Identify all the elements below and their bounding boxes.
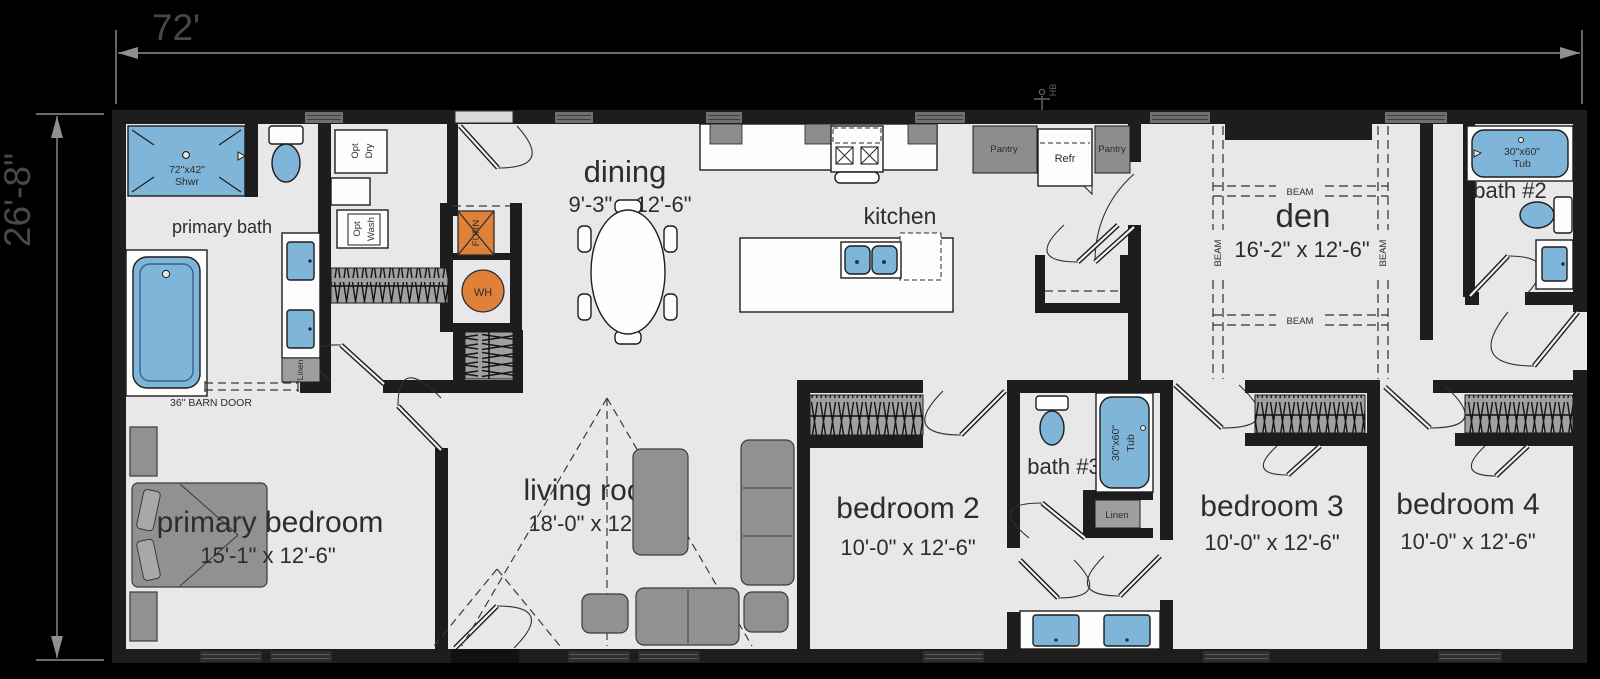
linen-label: Linen [295, 359, 305, 380]
linen-label: Linen [1105, 510, 1128, 521]
linen-primary: Linen [282, 358, 320, 382]
dishwasher [900, 233, 941, 280]
depth-dimension: 26'-8" [0, 114, 104, 660]
sofa-bottom [636, 588, 739, 645]
window [1203, 651, 1270, 662]
dim-arrow-left [118, 47, 138, 59]
kitchen-label: kitchen [864, 203, 937, 229]
wall-utility-right [510, 203, 522, 330]
wall-bed4-closet [1455, 433, 1573, 446]
hose-bib-label: HB [1048, 84, 1058, 97]
upper-cabinet [805, 124, 832, 144]
bedroom3-closet [1255, 395, 1365, 433]
wall-den-right [1420, 124, 1433, 340]
wall-left [112, 110, 126, 663]
bath2-tub-size: 30"x60" [1504, 146, 1540, 158]
wall-living-bed2 [797, 393, 810, 649]
window [706, 112, 742, 123]
upper-cabinet [710, 124, 742, 144]
pantry-label: Pantry [990, 144, 1018, 155]
side-table [744, 592, 788, 632]
shower: 72"x42" Shwr [128, 126, 245, 196]
window [1438, 651, 1502, 662]
dining-chair [578, 226, 591, 252]
primary-vanity [282, 233, 320, 358]
island-sink [872, 246, 897, 274]
window [568, 651, 630, 662]
sofa-right [741, 440, 794, 585]
bedroom4-closet [1465, 395, 1573, 433]
bedroom2-size: 10'-0" x 12'-6" [840, 535, 975, 560]
bedroom4-size: 10'-0" x 12'-6" [1400, 529, 1535, 554]
range-front [835, 172, 879, 183]
wall-hall-bed3-upper [1160, 393, 1173, 540]
water-heater-label: WH [474, 287, 492, 299]
den-size: 16'-2" x 12'-6" [1234, 237, 1369, 262]
opt-dry-word2: Dry [364, 143, 375, 158]
wall-mid-g [1433, 380, 1573, 393]
wall-mid-c [383, 380, 523, 393]
bedroom3-size: 10'-0" x 12'-6" [1204, 530, 1339, 555]
front-door-threshold [451, 649, 519, 663]
wall-primary-living [435, 448, 448, 649]
hose-bib-symbol: HB [1034, 84, 1058, 110]
dining-chair [664, 226, 677, 252]
barn-door-note: 36" BARN DOOR [170, 397, 252, 409]
nightstand [130, 592, 157, 641]
shower-abbr-label: Shwr [175, 176, 199, 188]
wall-wh-bottom [440, 323, 522, 332]
furnace-label: FURN [471, 220, 482, 247]
toilet-primary [269, 126, 303, 182]
dim-arrow-top [51, 116, 63, 138]
window [555, 112, 593, 123]
bath3-tub-abbr: Tub [1125, 434, 1137, 452]
window [1385, 112, 1447, 123]
window [638, 651, 700, 662]
linen-hall: Linen [1095, 500, 1140, 528]
shower-size-label: 72"x42" [169, 164, 205, 176]
water-heater: WH [462, 270, 504, 312]
bath2-tub-abbr: Tub [1513, 158, 1531, 170]
wall-bed2-closet [810, 435, 923, 448]
dining-chair [664, 294, 677, 320]
laundry-closet [331, 268, 448, 303]
bath3-tub: 30"x60" Tub [1096, 393, 1153, 492]
refrigerator: Refr [1038, 129, 1092, 194]
window [305, 112, 343, 123]
wall-mid-d [797, 380, 923, 393]
primary-bedroom-size: 15'-1" x 12'-6" [200, 543, 335, 568]
bedroom4-label: bedroom 4 [1396, 488, 1539, 521]
kitchen-island [740, 233, 953, 312]
pantry-label: Pantry [1098, 144, 1126, 155]
wall-hallcloset-bottom [1035, 303, 1130, 313]
utility-counter [331, 178, 370, 205]
floor-plan-page: 72' 26'-8" HB [0, 0, 1600, 679]
wall-bed2-hall-upper [1007, 393, 1020, 548]
hose-bib-head [1039, 89, 1044, 94]
back-door-threshold [455, 111, 513, 123]
bath2-label: bath #2 [1473, 178, 1546, 203]
wall-bed3-closet [1245, 433, 1368, 446]
width-dimension-label: 72' [152, 7, 200, 48]
refrigerator-label: Refr [1055, 153, 1076, 165]
burner [836, 147, 853, 164]
window [923, 651, 984, 662]
window [200, 651, 262, 662]
dining-chair [578, 294, 591, 320]
shower-drain [183, 152, 190, 159]
pantry-right: Pantry [1095, 126, 1130, 173]
pantry-left: Pantry [973, 126, 1037, 173]
wall-den-top-inset [1225, 124, 1372, 140]
bath2-tub: 30"x60" Tub [1467, 126, 1573, 181]
wall-mid-e [1007, 380, 1173, 393]
wall-right-lower [1573, 370, 1587, 663]
depth-dimension-label: 26'-8" [0, 153, 38, 247]
window [1150, 112, 1210, 123]
primary-tub [126, 250, 207, 396]
wall-bed3-bed4 [1367, 393, 1380, 649]
wall-closet-right [513, 330, 523, 380]
wall-utility-left [440, 203, 453, 330]
primary-bath-label: primary bath [172, 217, 272, 237]
opt-wash-word2: Wash [366, 217, 377, 241]
optional-washer: Opt Wash [337, 210, 388, 248]
beam-label-bottom: BEAM [1287, 316, 1314, 327]
wall-laundry-right [447, 124, 458, 216]
wall-closet-left [453, 330, 465, 380]
wall-bed2-hall-lower [1007, 612, 1020, 649]
primary-bedroom-label: primary bedroom [157, 506, 384, 539]
dim-arrow-right [1560, 47, 1580, 59]
ottoman [582, 594, 628, 633]
beam-label-left: BEAM [1213, 239, 1224, 266]
floor-plan-drawing: 72' 26'-8" HB [0, 0, 1600, 679]
opt-dry-word1: Opt [350, 143, 361, 159]
island-sink [845, 246, 870, 274]
dining-label: dining [584, 154, 667, 189]
bedroom2-closet [810, 395, 923, 435]
optional-dryer: Opt Dry [335, 130, 387, 173]
wall-linen-bottom [1083, 528, 1153, 538]
wall-right-upper [1573, 110, 1587, 312]
wall-hall-bed3-lower [1160, 600, 1173, 649]
window [270, 651, 332, 662]
wall-bottom [112, 649, 1587, 663]
burner [861, 147, 878, 164]
bath3-tub-size: 30"x60" [1110, 425, 1122, 461]
wall-bath2-bottom-b [1525, 292, 1573, 305]
wall-mid-f [1245, 380, 1380, 393]
utility-closet [465, 332, 513, 379]
nightstand [130, 427, 157, 476]
lounge-chair [633, 449, 688, 555]
hall-vanity [1020, 611, 1160, 649]
bath3-label: bath #3 [1027, 454, 1100, 479]
bedroom3-label: bedroom 3 [1200, 490, 1343, 523]
bedroom2-label: bedroom 2 [836, 492, 979, 525]
den-label: den [1275, 197, 1330, 234]
window [915, 112, 965, 123]
opt-wash-word1: Opt [352, 221, 363, 237]
beam-label-right: BEAM [1378, 239, 1389, 266]
dim-arrow-bottom [51, 636, 63, 658]
width-dimension: 72' [116, 7, 1582, 104]
upper-cabinet [908, 124, 937, 144]
bath2-vanity [1536, 240, 1573, 289]
range [831, 126, 883, 183]
wall-shower-stub [245, 110, 258, 197]
